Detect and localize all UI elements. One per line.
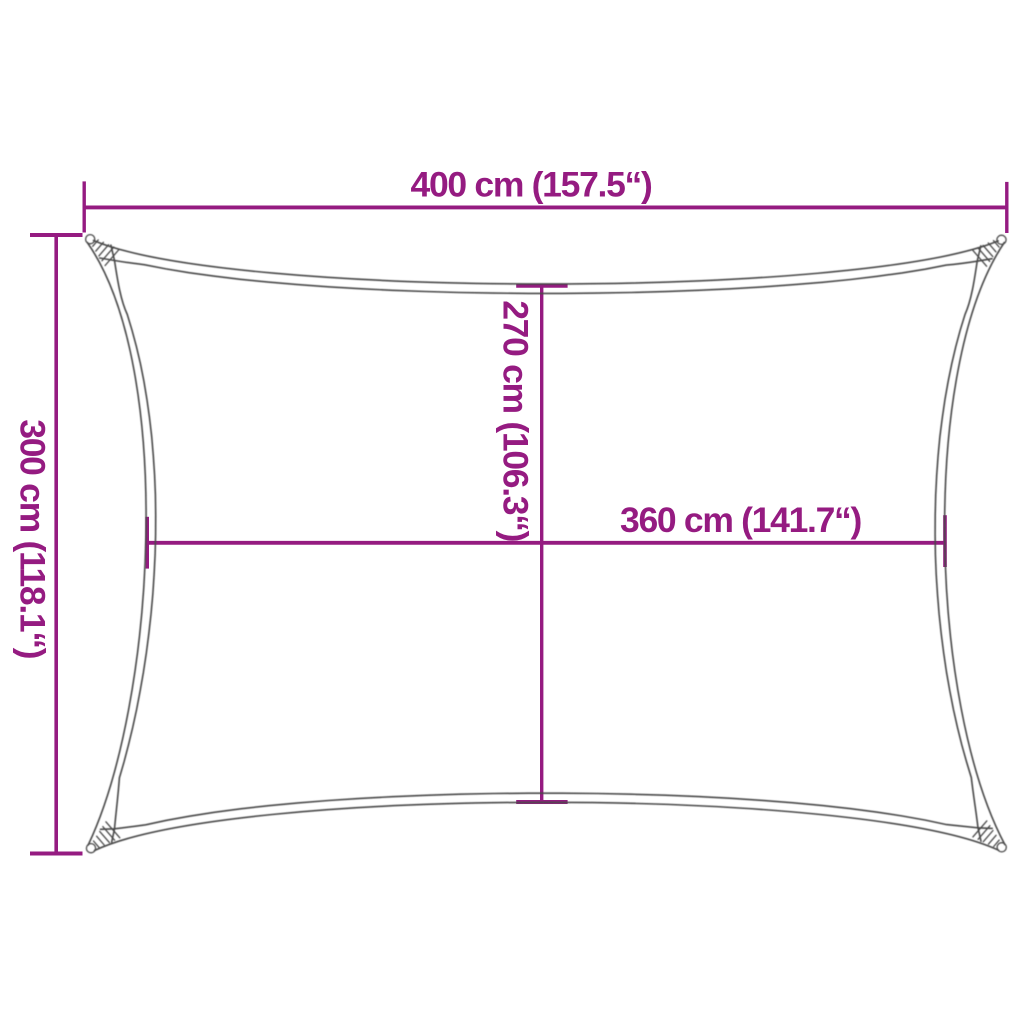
svg-text:400 cm (157.5“): 400 cm (157.5“) xyxy=(411,165,652,205)
svg-text:300 cm (118.1“): 300 cm (118.1“) xyxy=(13,419,53,659)
svg-text:270 cm (106.3“): 270 cm (106.3“) xyxy=(495,300,535,541)
svg-text:360 cm (141.7“): 360 cm (141.7“) xyxy=(620,500,861,540)
